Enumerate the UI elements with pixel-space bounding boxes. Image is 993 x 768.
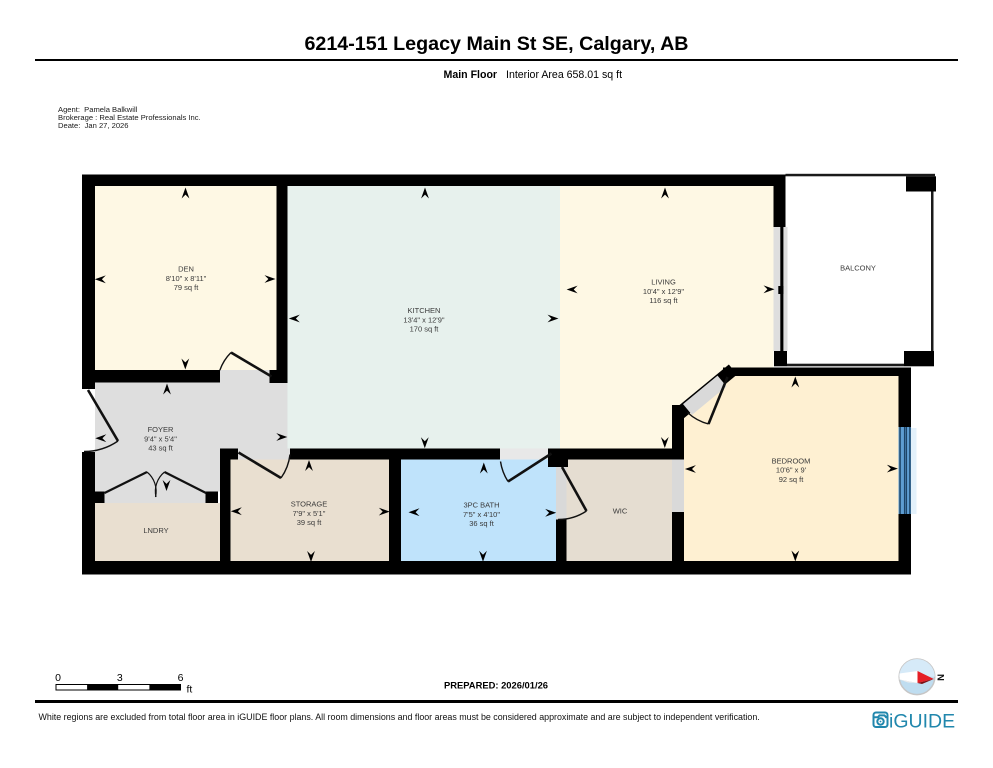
- svg-text:0: 0: [55, 672, 61, 684]
- svg-text:LIVING: LIVING: [651, 278, 676, 287]
- svg-text:13'4" x 12'9": 13'4" x 12'9": [403, 315, 444, 324]
- svg-text:KITCHEN: KITCHEN: [408, 306, 441, 315]
- svg-text:ft: ft: [187, 684, 193, 696]
- svg-text:LNDRY: LNDRY: [143, 526, 168, 535]
- svg-text:170 sq ft: 170 sq ft: [410, 325, 440, 334]
- svg-text:BALCONY: BALCONY: [840, 264, 876, 273]
- svg-text:BEDROOM: BEDROOM: [772, 456, 811, 465]
- svg-text:10'4" x 12'9": 10'4" x 12'9": [643, 287, 684, 296]
- svg-text:92 sq ft: 92 sq ft: [779, 475, 805, 484]
- svg-text:36 sq ft: 36 sq ft: [469, 519, 495, 528]
- svg-text:7'5" x 4'10": 7'5" x 4'10": [463, 510, 500, 519]
- svg-text:79 sq ft: 79 sq ft: [174, 283, 200, 292]
- svg-text:3PC BATH: 3PC BATH: [463, 501, 499, 510]
- svg-text:iGUIDE: iGUIDE: [889, 710, 955, 732]
- svg-text:DEN: DEN: [178, 265, 194, 274]
- svg-text:STORAGE: STORAGE: [291, 500, 328, 509]
- svg-text:43 sq ft: 43 sq ft: [148, 444, 174, 453]
- svg-text:PREPARED: 2026/01/26: PREPARED: 2026/01/26: [444, 680, 548, 691]
- svg-text:7'9" x 5'1": 7'9" x 5'1": [293, 509, 326, 518]
- svg-text:8'10" x 8'11": 8'10" x 8'11": [166, 274, 207, 283]
- svg-text:N: N: [934, 674, 945, 681]
- svg-text:WIC: WIC: [613, 507, 628, 516]
- svg-text:3: 3: [117, 672, 123, 684]
- svg-text:39 sq ft: 39 sq ft: [297, 518, 323, 527]
- svg-text:9'4" x 5'4": 9'4" x 5'4": [144, 434, 177, 443]
- svg-text:6: 6: [178, 672, 184, 684]
- svg-text:116 sq ft: 116 sq ft: [649, 296, 678, 305]
- svg-text:10'6" x 9': 10'6" x 9': [776, 466, 807, 475]
- svg-text:FOYER: FOYER: [148, 425, 174, 434]
